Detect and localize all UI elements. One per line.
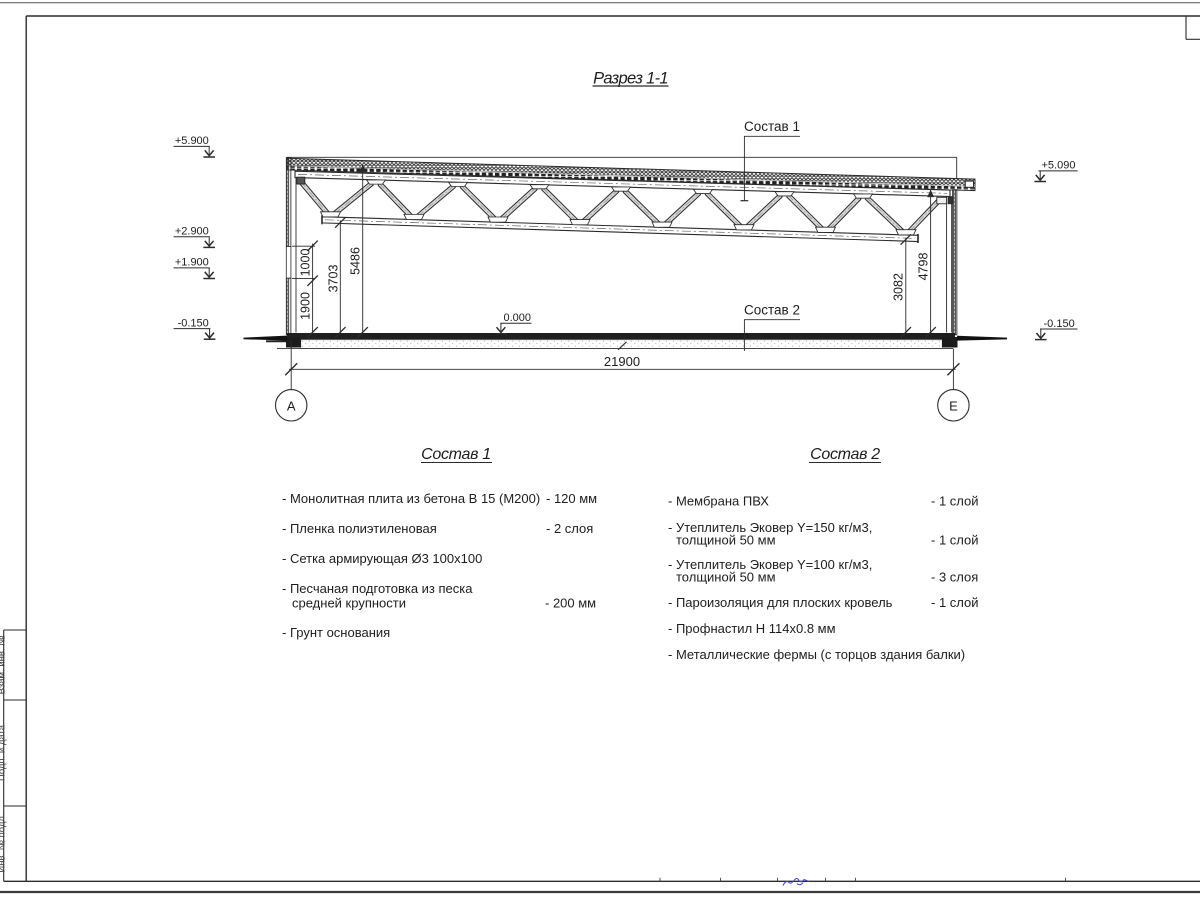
svg-text:+1.900: +1.900 [175,257,209,269]
svg-text:- Сетка армирующая Ø3 100х100: - Сетка армирующая Ø3 100х100 [282,551,482,566]
svg-text:толщиной 50 мм: толщиной 50 мм [676,570,776,585]
svg-text:- Пленка полиэтиленовая: - Пленка полиэтиленовая [282,521,437,536]
svg-text:- Пароизоляция для плоских кро: - Пароизоляция для плоских кровель [668,595,893,610]
svg-text:- Профнастил Н 114х0.8 мм: - Профнастил Н 114х0.8 мм [668,621,836,636]
svg-text:- Песчаная подготовка из песка: - Песчаная подготовка из песка [282,581,473,596]
svg-text:1900: 1900 [299,292,313,320]
svg-text:- Грунт основания: - Грунт основания [282,625,390,640]
svg-text:- 2 слоя: - 2 слоя [546,521,593,536]
svg-text:толщиной 50 мм: толщиной 50 мм [676,533,776,548]
svg-text:- 200 мм: - 200 мм [545,596,596,611]
svg-text:4798: 4798 [916,253,930,281]
svg-text:3703: 3703 [326,265,340,293]
svg-text:- Мембрана ПВХ: - Мембрана ПВХ [668,494,769,509]
svg-text:Состав 2: Состав 2 [744,303,800,318]
svg-text:- 1 слой: - 1 слой [931,595,979,610]
svg-text:-0.150: -0.150 [178,317,209,329]
svg-text:+5.900: +5.900 [175,135,209,147]
svg-text:1000: 1000 [299,249,313,277]
svg-text:Е: Е [949,398,958,413]
svg-text:Состав 1: Состав 1 [744,119,800,134]
svg-text:-0.150: -0.150 [1044,318,1075,330]
svg-text:средней крупности: средней крупности [292,596,406,611]
svg-text:Разрез 1-1: Разрез 1-1 [593,70,668,88]
svg-text:Состав 2: Состав 2 [810,446,880,463]
svg-text:5486: 5486 [349,247,363,275]
svg-text:- 120 мм: - 120 мм [546,491,597,506]
svg-text:- 3 слоя: - 3 слоя [931,570,978,585]
svg-text:+5.090: +5.090 [1042,160,1076,172]
svg-text:- Металлические фермы (с торцо: - Металлические фермы (с торцов здания б… [668,647,965,662]
svg-text:А: А [287,398,296,413]
svg-text:- Монолитная плита из бетона В: - Монолитная плита из бетона В 15 (М200) [282,491,540,506]
svg-text:Состав 1: Состав 1 [421,446,491,463]
svg-text:21900: 21900 [604,354,640,369]
svg-text:0.000: 0.000 [504,312,532,324]
svg-text:+2.900: +2.900 [175,226,209,238]
svg-text:3082: 3082 [892,273,906,301]
svg-text:Подп. и дата: Подп. и дата [0,724,7,781]
svg-text:Инв. № подл.: Инв. № подл. [0,813,7,872]
svg-text:- 1 слой: - 1 слой [931,533,979,548]
svg-text:Взам. инв. №: Взам. инв. № [0,636,7,695]
svg-text:- 1 слой: - 1 слой [931,494,979,509]
